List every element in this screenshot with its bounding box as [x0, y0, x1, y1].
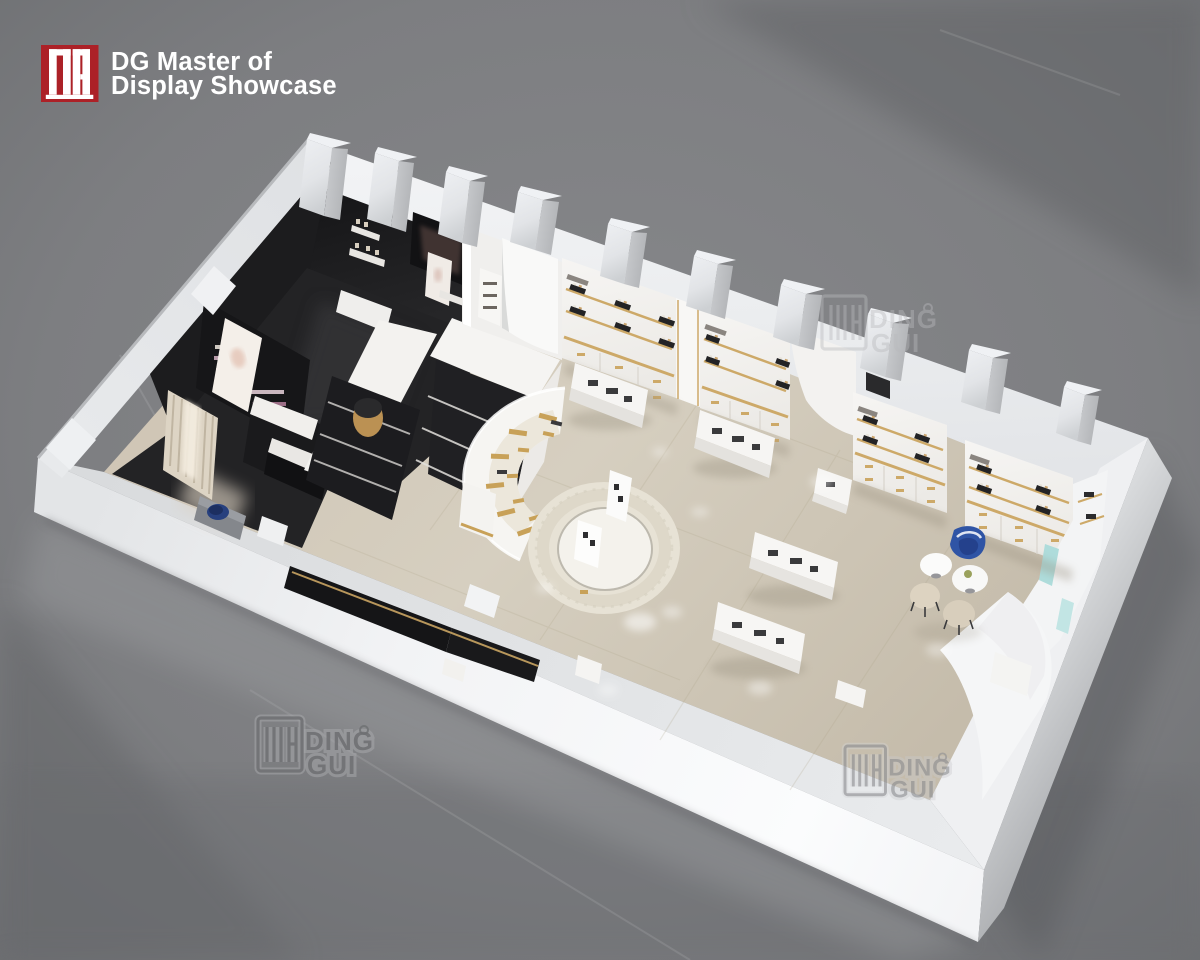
- svg-text:GUI: GUI: [890, 777, 935, 804]
- svg-text:Display Showcase: Display Showcase: [111, 72, 337, 100]
- svg-text:GUI: GUI: [307, 750, 356, 780]
- svg-text:GUI: GUI: [871, 328, 920, 358]
